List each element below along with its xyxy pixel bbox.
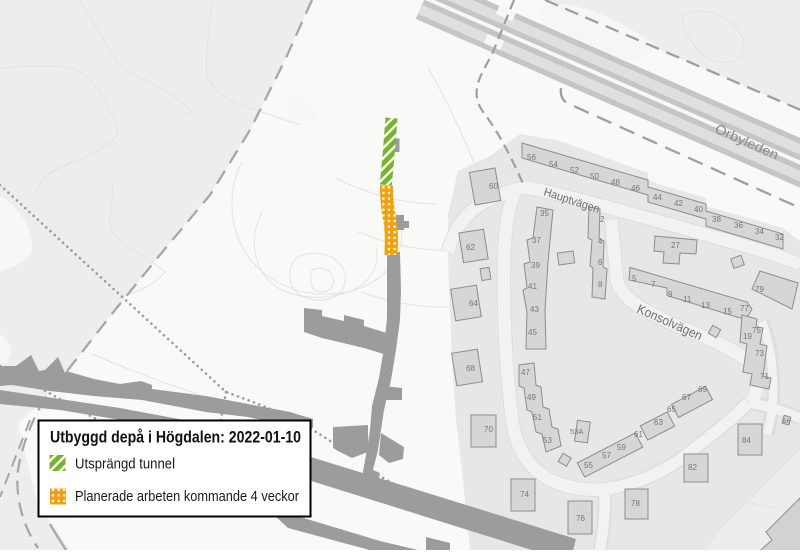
svg-text:68: 68 <box>466 364 475 373</box>
svg-text:82: 82 <box>688 463 697 472</box>
svg-text:65: 65 <box>667 405 676 414</box>
svg-text:45: 45 <box>528 328 537 337</box>
svg-text:74: 74 <box>520 490 529 499</box>
svg-text:44: 44 <box>653 193 662 202</box>
svg-text:62: 62 <box>466 243 475 252</box>
svg-text:34: 34 <box>755 227 764 236</box>
svg-text:70: 70 <box>484 425 493 434</box>
svg-text:66: 66 <box>783 418 791 425</box>
svg-text:69: 69 <box>698 385 707 394</box>
svg-text:50: 50 <box>590 172 599 181</box>
svg-text:84: 84 <box>742 436 751 445</box>
svg-text:Utsprängd tunnel: Utsprängd tunnel <box>75 456 175 473</box>
svg-text:7: 7 <box>651 280 656 289</box>
svg-text:Utbyggd depå i Högdalen: 2022-: Utbyggd depå i Högdalen: 2022-01-10 <box>50 429 301 447</box>
svg-text:60: 60 <box>489 182 498 191</box>
svg-text:51: 51 <box>533 413 542 422</box>
svg-text:54: 54 <box>549 160 558 169</box>
svg-text:13: 13 <box>701 301 710 310</box>
svg-text:36: 36 <box>734 221 743 230</box>
svg-text:53: 53 <box>543 436 552 445</box>
svg-text:6: 6 <box>598 258 603 267</box>
svg-text:76: 76 <box>576 514 585 523</box>
svg-text:9: 9 <box>668 290 673 299</box>
svg-text:40: 40 <box>694 205 703 214</box>
svg-text:27: 27 <box>671 241 680 250</box>
svg-text:73: 73 <box>755 349 764 358</box>
svg-text:78: 78 <box>631 499 640 508</box>
svg-text:56: 56 <box>527 153 536 162</box>
svg-text:79: 79 <box>755 285 764 294</box>
svg-text:8: 8 <box>598 280 603 289</box>
svg-text:4: 4 <box>598 237 603 246</box>
svg-text:47: 47 <box>521 368 530 377</box>
svg-text:61: 61 <box>634 430 643 439</box>
svg-text:5: 5 <box>632 274 637 283</box>
svg-text:59: 59 <box>617 443 626 452</box>
svg-text:42: 42 <box>674 199 683 208</box>
svg-text:55: 55 <box>584 461 593 470</box>
svg-text:46: 46 <box>631 184 640 193</box>
svg-text:38: 38 <box>712 215 721 224</box>
svg-text:57: 57 <box>602 451 611 460</box>
svg-text:32: 32 <box>775 233 784 242</box>
svg-text:39: 39 <box>531 261 540 270</box>
svg-text:37: 37 <box>532 236 541 245</box>
svg-text:43: 43 <box>530 305 539 314</box>
svg-text:77: 77 <box>740 304 749 313</box>
svg-text:48: 48 <box>611 178 620 187</box>
svg-text:64: 64 <box>469 299 478 308</box>
svg-text:15: 15 <box>723 307 732 316</box>
svg-text:71: 71 <box>760 372 769 381</box>
svg-text:35: 35 <box>540 209 549 218</box>
svg-text:Planerade arbeten kommande 4 v: Planerade arbeten kommande 4 veckor <box>75 488 299 505</box>
svg-text:63: 63 <box>654 418 663 427</box>
svg-text:49: 49 <box>527 393 536 402</box>
svg-text:67: 67 <box>682 393 691 402</box>
svg-text:75: 75 <box>752 326 761 335</box>
svg-text:19: 19 <box>743 332 752 341</box>
svg-text:52: 52 <box>570 166 579 175</box>
svg-text:2: 2 <box>600 215 605 224</box>
svg-text:41: 41 <box>528 282 537 291</box>
svg-text:11: 11 <box>683 295 692 304</box>
svg-text:53A: 53A <box>570 427 583 436</box>
